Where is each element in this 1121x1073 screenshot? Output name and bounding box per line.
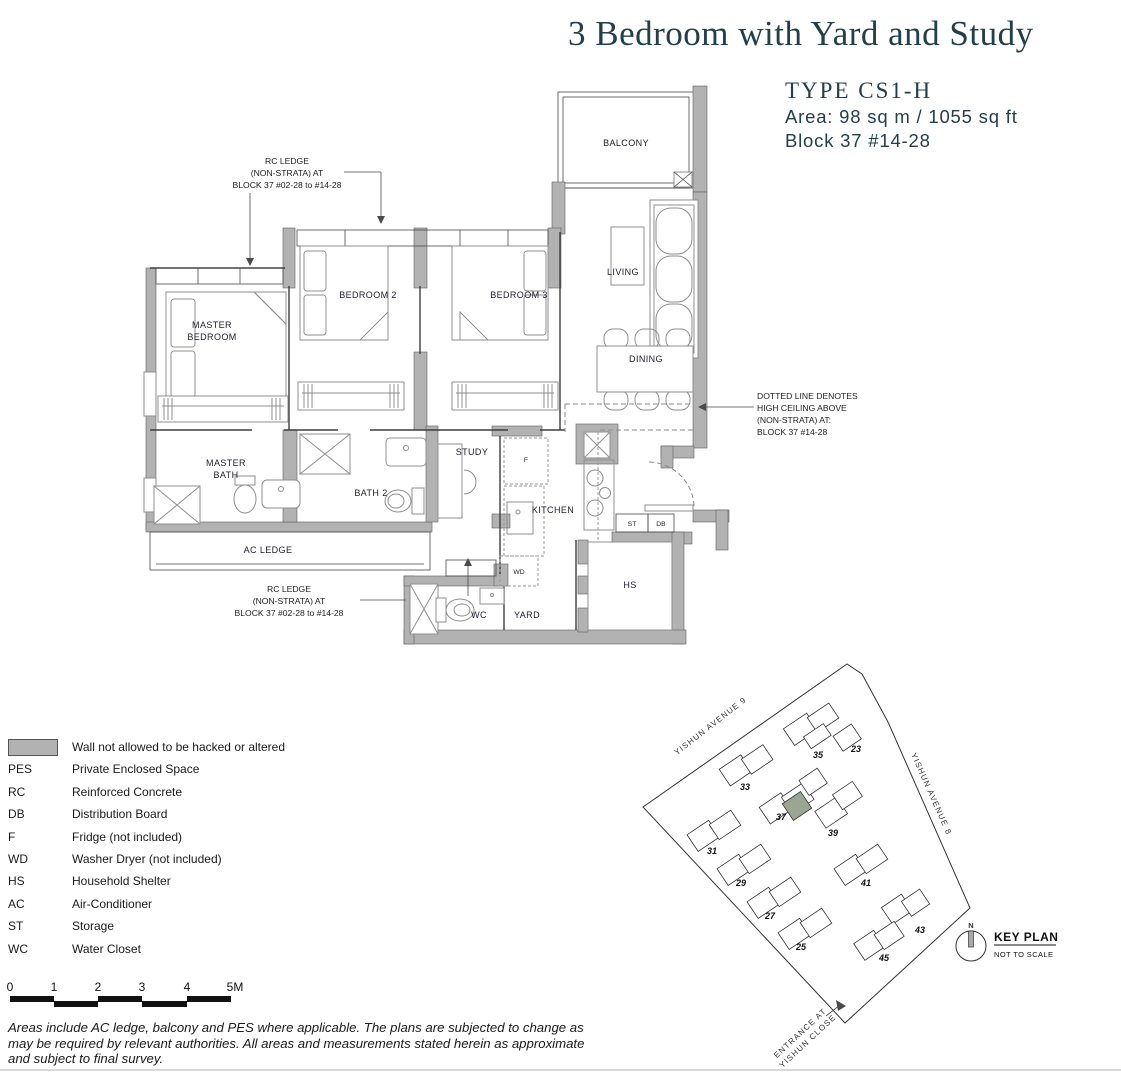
legend-row-wd: WDWasher Dryer (not included) — [8, 849, 308, 871]
room-label-db: DB — [656, 521, 666, 528]
legend-row-rc: RCReinforced Concrete — [8, 782, 308, 804]
master-bed — [166, 292, 286, 404]
svg-text:RC LEDGE: RC LEDGE — [265, 156, 309, 166]
kp-label-35: 35 — [813, 750, 824, 760]
bedroom3-wardrobe — [452, 382, 558, 410]
floorplan-page: 3 Bedroom with Yard and Study TYPE CS1-H… — [0, 0, 1121, 1073]
room-label-yard: YARD — [514, 610, 540, 620]
north-label: N — [968, 921, 973, 930]
room-label-st: ST — [628, 521, 637, 528]
kp-label-27: 27 — [764, 911, 776, 921]
wc-fixtures — [410, 584, 504, 634]
room-label-bedroom3: BEDROOM 3 — [490, 290, 548, 300]
room-label-ac-ledge: AC LEDGE — [244, 545, 293, 555]
disclaimer-text: Areas include AC ledge, balcony and PES … — [8, 1020, 584, 1067]
master-wardrobe — [158, 396, 288, 422]
svg-text:(NON-STRATA) AT:: (NON-STRATA) AT: — [757, 415, 831, 425]
kp-label-33: 33 — [740, 782, 750, 792]
svg-text:4: 4 — [184, 980, 191, 994]
wall-swatch — [8, 739, 58, 756]
svg-text:DOTTED LINE DENOTES: DOTTED LINE DENOTES — [757, 391, 858, 401]
north-compass: N — [956, 921, 986, 961]
kp-label-25: 25 — [795, 942, 807, 952]
room-label-mbath-1: MASTER — [206, 458, 246, 468]
kp-label-31: 31 — [707, 846, 717, 856]
kp-road-yishun-ave-8: YISHUN AVENUE 8 — [909, 752, 953, 837]
svg-text:RC LEDGE: RC LEDGE — [267, 584, 311, 594]
kp-label-29: 29 — [735, 878, 746, 888]
kp-road-yishun-ave-9: YISHUN AVENUE 9 — [673, 695, 749, 757]
key-plan: 35 23 33 31 29 27 25 37 39 41 43 45 YISH… — [643, 664, 1058, 1070]
legend-row-wc: WCWater Closet — [8, 939, 308, 961]
legend-row-st: STStorage — [8, 916, 308, 938]
legend-row-f: FFridge (not included) — [8, 827, 308, 849]
svg-text:3: 3 — [139, 980, 146, 994]
legend-row-db: DBDistribution Board — [8, 804, 308, 826]
svg-text:BLOCK 37 #14-28: BLOCK 37 #14-28 — [757, 427, 827, 437]
room-label-master-2: BEDROOM — [187, 332, 236, 342]
kp-label-23: 23 — [850, 744, 861, 754]
legend-row-hs: HSHousehold Shelter — [8, 871, 308, 893]
svg-text:BLOCK 37 #02-28 to #14-28: BLOCK 37 #02-28 to #14-28 — [233, 180, 342, 190]
room-label-mbath-2: BATH — [214, 470, 239, 480]
scale-bar: 0 1 2 3 4 5M — [7, 980, 244, 1007]
legend-row-pes: PESPrivate Enclosed Space — [8, 759, 308, 781]
sofa — [650, 200, 698, 358]
room-label-study: STUDY — [456, 447, 489, 457]
room-label-bedroom2: BEDROOM 2 — [339, 290, 397, 300]
kp-label-37: 37 — [776, 812, 787, 822]
room-label-bath2: BATH 2 — [354, 488, 387, 498]
bottom-divider — [0, 1069, 1121, 1071]
svg-text:2: 2 — [95, 980, 102, 994]
kp-label-41: 41 — [860, 878, 871, 888]
dining-table — [597, 346, 693, 392]
legend-row-ac: ACAir-Conditioner — [8, 894, 308, 916]
legend-row-wall: Wall not allowed to be hacked or altered — [8, 737, 308, 759]
svg-text:1: 1 — [51, 980, 58, 994]
room-label-wc: WC — [471, 610, 487, 620]
room-label-fridge: F — [524, 457, 528, 464]
room-label-wd: WD — [513, 569, 524, 576]
room-label-living: LIVING — [607, 267, 639, 277]
svg-text:5M: 5M — [227, 980, 244, 994]
svg-text:HIGH CEILING ABOVE: HIGH CEILING ABOVE — [757, 403, 847, 413]
svg-text:(NON-STRATA) AT: (NON-STRATA) AT — [251, 168, 324, 178]
kp-label-39: 39 — [828, 828, 838, 838]
room-label-master-1: MASTER — [192, 320, 232, 330]
room-label-balcony: BALCONY — [603, 138, 649, 148]
room-label-kitchen: KITCHEN — [532, 505, 574, 515]
kp-entrance-arrowhead — [836, 1000, 846, 1011]
room-label-hs: HS — [623, 580, 636, 590]
legend: Wall not allowed to be hacked or altered… — [8, 737, 308, 961]
master-bath-fixtures — [154, 476, 300, 524]
kp-cluster-39 — [813, 781, 866, 828]
kp-cluster-35 — [783, 700, 844, 756]
room-label-dining: DINING — [629, 354, 663, 364]
svg-text:0: 0 — [7, 980, 14, 994]
kp-label-43: 43 — [914, 925, 925, 935]
svg-text:BLOCK 37 #02-28 to #14-28: BLOCK 37 #02-28 to #14-28 — [235, 608, 344, 618]
bath2-fixtures — [300, 434, 426, 514]
keyplan-title: KEY PLAN — [994, 930, 1058, 944]
keyplan-subtitle: NOT TO SCALE — [994, 950, 1053, 959]
bedroom2-wardrobe — [298, 382, 404, 410]
high-ceiling-annotation: DOTTED LINE DENOTES HIGH CEILING ABOVE (… — [698, 391, 858, 437]
svg-text:(NON-STRATA) AT: (NON-STRATA) AT — [253, 596, 326, 606]
entrance-door — [645, 462, 694, 511]
floor-plan: BALCONY LIVING DINING MASTER BEDROOM BED… — [144, 86, 858, 644]
kp-label-45: 45 — [878, 953, 890, 963]
kp-cluster-43 — [881, 884, 929, 927]
